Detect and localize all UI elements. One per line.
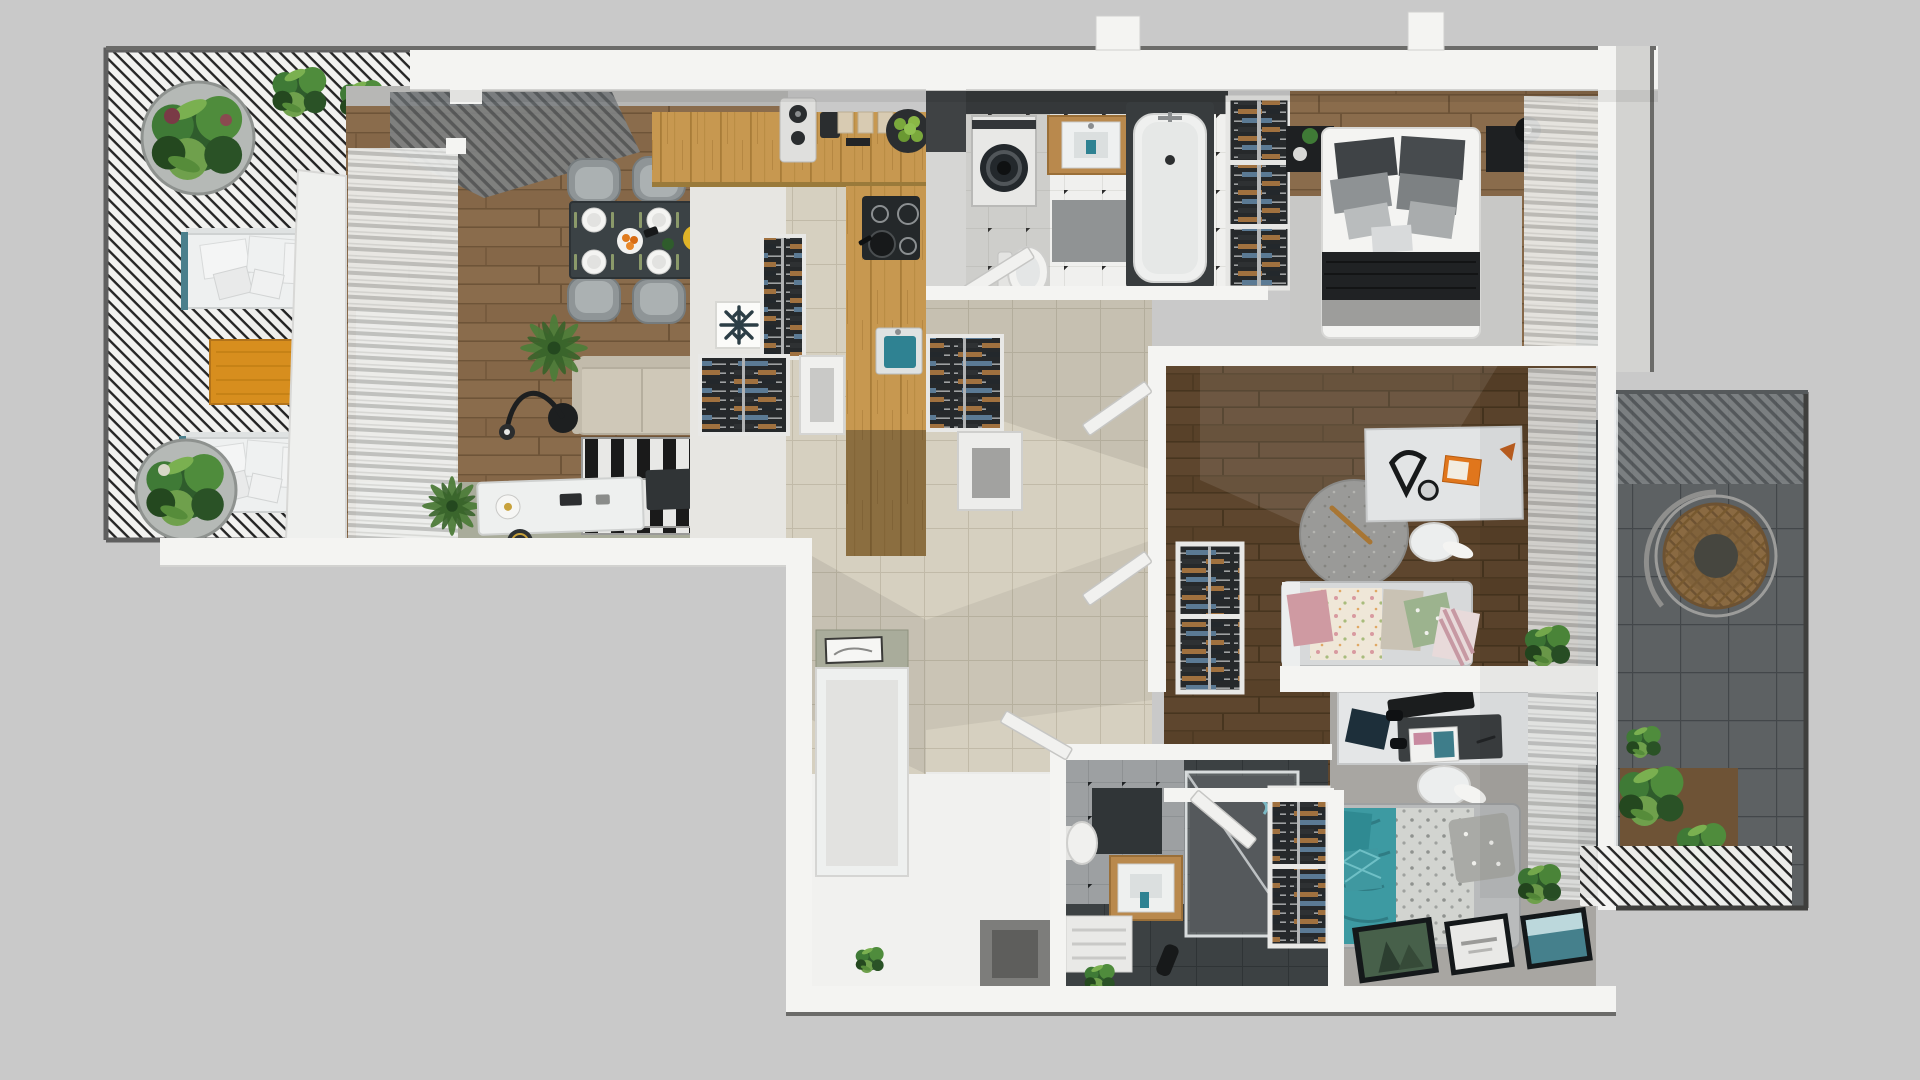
round-planter-top (142, 82, 254, 194)
toilet-2 (1062, 822, 1097, 864)
wall-notch (446, 138, 466, 154)
shower-mat (1052, 200, 1136, 262)
room-kitchen (652, 98, 930, 556)
pan (869, 231, 895, 257)
poster-ocean (1520, 907, 1593, 970)
table-plant (662, 238, 674, 250)
orange-book (1442, 456, 1481, 486)
shoe-cabinet (958, 432, 1022, 510)
double-bed (1322, 128, 1480, 338)
pergola-strip (1580, 846, 1792, 906)
coffee-machine (820, 112, 840, 138)
planter-box-plant (273, 66, 327, 117)
wardrobe-unit-wide (700, 356, 788, 434)
apple-bowl (886, 109, 930, 153)
pink-pillow (1287, 589, 1334, 646)
bathroom2-top-wall (1164, 788, 1334, 802)
top-exterior-wall (410, 46, 1658, 90)
wardrobe-rail (1257, 100, 1261, 286)
sideboard (477, 477, 644, 535)
kids-left-wall (1148, 346, 1166, 692)
cooktop (858, 196, 920, 260)
poster-text (1444, 913, 1515, 975)
shower-mat (1092, 788, 1162, 854)
bathroom1-bottom-wall (926, 286, 1268, 300)
teen-left-wall (1328, 790, 1344, 990)
washing-machine (972, 116, 1036, 206)
teal-diamond-pillow (1342, 848, 1382, 892)
roof-notch (1096, 16, 1140, 50)
bath2-wardrobe (1270, 788, 1328, 946)
master-blinds (1524, 96, 1598, 348)
floor-plan-render (0, 0, 1920, 1080)
balcony-plant (1626, 726, 1660, 758)
kids-wardrobe (1178, 544, 1242, 692)
master-bottom-wall (1148, 346, 1600, 366)
floor-plan-canvas (0, 0, 1920, 1080)
bathtub (1126, 102, 1214, 288)
black-throw (1322, 252, 1480, 304)
wardrobe-unit-tall (762, 236, 804, 358)
room-balcony-right (1580, 392, 1808, 908)
cutting-boards (838, 112, 893, 133)
built-in-wardrobe (1228, 98, 1290, 288)
entry-cabinet (816, 630, 908, 876)
entry-plant (856, 947, 884, 973)
entry-left-wall (786, 556, 812, 990)
room-master-bedroom (1286, 86, 1600, 348)
right-wall (1598, 46, 1616, 910)
round-planter-bottom (136, 440, 236, 540)
snowflake-fridge-marker (716, 302, 762, 348)
bottom-left-wall (160, 538, 812, 566)
daybed (1282, 582, 1480, 667)
gamepad (1386, 710, 1403, 721)
palm-plant (520, 314, 588, 382)
bath-bench (1066, 916, 1132, 972)
shaft-box (800, 356, 844, 434)
vanity-sink-2 (1110, 856, 1182, 920)
palm-plant (422, 476, 482, 536)
entry-bath2-wall (1050, 744, 1066, 990)
kitchen-sink (876, 328, 922, 374)
pocket-wall (926, 152, 966, 296)
magazine (1409, 727, 1459, 763)
gray-throw (1322, 300, 1480, 326)
poster-forest (1352, 917, 1439, 984)
speaker (780, 98, 816, 162)
louvered-roof (1616, 392, 1808, 484)
counter-tray (846, 138, 870, 146)
balcony-plant (1619, 765, 1684, 826)
room-bathroom-1 (963, 86, 1228, 298)
fruit-plate (617, 228, 643, 254)
gamepad (1390, 738, 1407, 749)
bottom-exterior-wall (786, 986, 1616, 1014)
wall-shadow (410, 90, 1658, 102)
hall-closet (928, 336, 1002, 430)
roof-notch (1408, 12, 1444, 50)
